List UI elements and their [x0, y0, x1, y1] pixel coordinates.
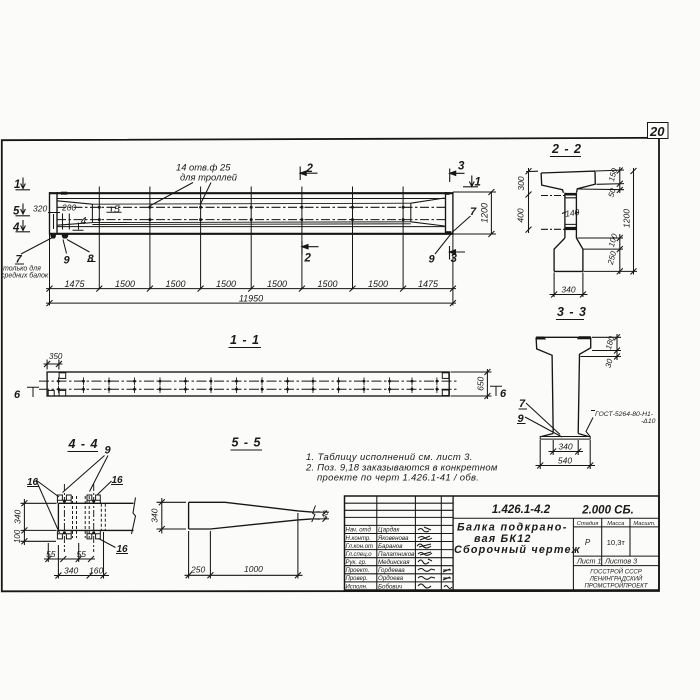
- svg-text:140: 140: [565, 207, 581, 219]
- svg-text:только для: только для: [3, 265, 41, 273]
- svg-text:1 - 1: 1 - 1: [230, 333, 260, 347]
- svg-text:7: 7: [470, 206, 477, 218]
- svg-text:1.426.1-4.2: 1.426.1-4.2: [492, 504, 551, 516]
- svg-text:Сборочный чертеж: Сборочный чертеж: [454, 544, 581, 556]
- svg-text:средних балок: средних балок: [1, 272, 49, 280]
- svg-text:200: 200: [61, 203, 76, 213]
- svg-text:340: 340: [150, 508, 160, 522]
- svg-text:650: 650: [476, 376, 486, 390]
- svg-text:Нач. отд: Нач. отд: [346, 528, 372, 534]
- svg-text:350: 350: [49, 352, 63, 361]
- svg-text:-Δ10: -Δ10: [641, 418, 656, 425]
- svg-text:проекте по черт 1.426.1-41 / о: проекте по черт 1.426.1-41 / обв.: [317, 473, 479, 484]
- svg-text:10,3т: 10,3т: [607, 538, 626, 547]
- svg-text:Н.контр.: Н.контр.: [346, 536, 371, 542]
- svg-text:Гл.спец.о: Гл.спец.о: [346, 552, 373, 558]
- svg-text:340: 340: [64, 566, 78, 576]
- svg-text:ГОСТ-5264-80-Н1-: ГОСТ-5264-80-Н1-: [595, 411, 654, 418]
- svg-text:для троллей: для троллей: [180, 172, 238, 183]
- svg-text:1500: 1500: [317, 279, 337, 289]
- svg-text:400: 400: [516, 208, 526, 222]
- svg-text:ГОССТРОЙ СССР: ГОССТРОЙ СССР: [590, 568, 642, 576]
- svg-text:3: 3: [458, 161, 465, 173]
- svg-text:2 - 2: 2 - 2: [551, 142, 582, 156]
- svg-text:55: 55: [46, 549, 56, 559]
- svg-text:8: 8: [88, 253, 95, 265]
- svg-text:Палатников: Палатников: [378, 551, 415, 558]
- svg-text:100: 100: [13, 529, 22, 543]
- svg-text:40: 40: [320, 509, 331, 520]
- svg-text:1200: 1200: [622, 209, 632, 228]
- svg-text:Провер.: Провер.: [346, 576, 368, 582]
- svg-text:160: 160: [89, 566, 103, 576]
- svg-text:9: 9: [64, 255, 71, 267]
- svg-text:ПРОМСТРОЙПРОЕКТ: ПРОМСТРОЙПРОЕКТ: [585, 582, 649, 590]
- svg-text:1500: 1500: [165, 279, 185, 289]
- svg-text:1475: 1475: [64, 279, 85, 289]
- svg-text:250: 250: [190, 565, 205, 575]
- svg-text:Бобович: Бобович: [378, 583, 403, 590]
- svg-text:2.000 СБ.: 2.000 СБ.: [581, 505, 634, 517]
- svg-text:1500: 1500: [216, 279, 236, 289]
- svg-text:1500: 1500: [267, 279, 287, 289]
- svg-text:340: 340: [13, 509, 23, 523]
- svg-text:5 - 5: 5 - 5: [232, 436, 262, 450]
- svg-text:Проект.: Проект.: [346, 568, 370, 574]
- svg-text:9: 9: [429, 254, 436, 266]
- svg-text:540: 540: [558, 456, 572, 466]
- svg-text:1200: 1200: [480, 203, 490, 223]
- svg-text:300: 300: [516, 176, 526, 190]
- svg-text:Р: Р: [585, 538, 591, 547]
- svg-text:6: 6: [14, 389, 21, 401]
- svg-text:6: 6: [500, 388, 507, 400]
- svg-text:Листов 3: Листов 3: [604, 557, 637, 566]
- svg-text:30: 30: [604, 357, 615, 368]
- svg-text:1500: 1500: [368, 279, 388, 289]
- svg-text:Мединская: Мединская: [378, 559, 410, 566]
- svg-text:340: 340: [558, 442, 572, 452]
- svg-text:Лист 1: Лист 1: [576, 557, 602, 566]
- svg-text:4 - 4: 4 - 4: [68, 437, 99, 451]
- svg-text:4: 4: [81, 215, 87, 227]
- svg-text:2: 2: [304, 253, 312, 265]
- svg-text:Яковенова: Яковенова: [377, 535, 409, 542]
- svg-text:5: 5: [114, 204, 120, 216]
- svg-text:3: 3: [451, 253, 458, 265]
- svg-text:150: 150: [607, 167, 619, 183]
- svg-text:1. Таблицу исполнений см. лис: 1. Таблицу исполнений см. лист 3.: [306, 452, 473, 463]
- svg-text:Гордеева: Гордеева: [378, 567, 405, 574]
- svg-text:Цардак: Цардак: [378, 527, 400, 534]
- svg-text:1475: 1475: [418, 279, 439, 289]
- svg-text:11950: 11950: [239, 294, 263, 304]
- svg-text:250: 250: [606, 250, 619, 267]
- svg-text:1: 1: [14, 179, 20, 191]
- svg-text:7: 7: [519, 398, 526, 410]
- svg-text:Масса: Масса: [607, 521, 625, 527]
- svg-text:Масшт.: Масшт.: [633, 521, 655, 527]
- svg-text:ЛЕНИНГРАДСКИЙ: ЛЕНИНГРАДСКИЙ: [589, 575, 643, 583]
- svg-text:320: 320: [33, 204, 47, 214]
- svg-text:55: 55: [77, 549, 87, 559]
- svg-text:вая БК12: вая БК12: [474, 533, 532, 545]
- svg-text:100: 100: [607, 232, 619, 248]
- svg-text:1000: 1000: [244, 564, 263, 574]
- svg-text:Баранов: Баранов: [378, 543, 403, 550]
- svg-text:20: 20: [649, 124, 665, 139]
- svg-text:1500: 1500: [115, 279, 135, 289]
- svg-text:Рук. гр.: Рук. гр.: [346, 560, 367, 566]
- svg-text:Стадия: Стадия: [577, 521, 599, 527]
- svg-text:50: 50: [607, 187, 618, 198]
- svg-text:Гл.кон.от: Гл.кон.от: [346, 544, 374, 550]
- svg-text:Исполн.: Исполн.: [346, 584, 368, 590]
- svg-text:3 - 3: 3 - 3: [557, 305, 587, 319]
- svg-text:Ордоева: Ордоева: [378, 575, 404, 582]
- svg-text:Балка подкрано-: Балка подкрано-: [457, 522, 568, 534]
- svg-text:9: 9: [105, 445, 112, 457]
- svg-text:340: 340: [561, 285, 575, 295]
